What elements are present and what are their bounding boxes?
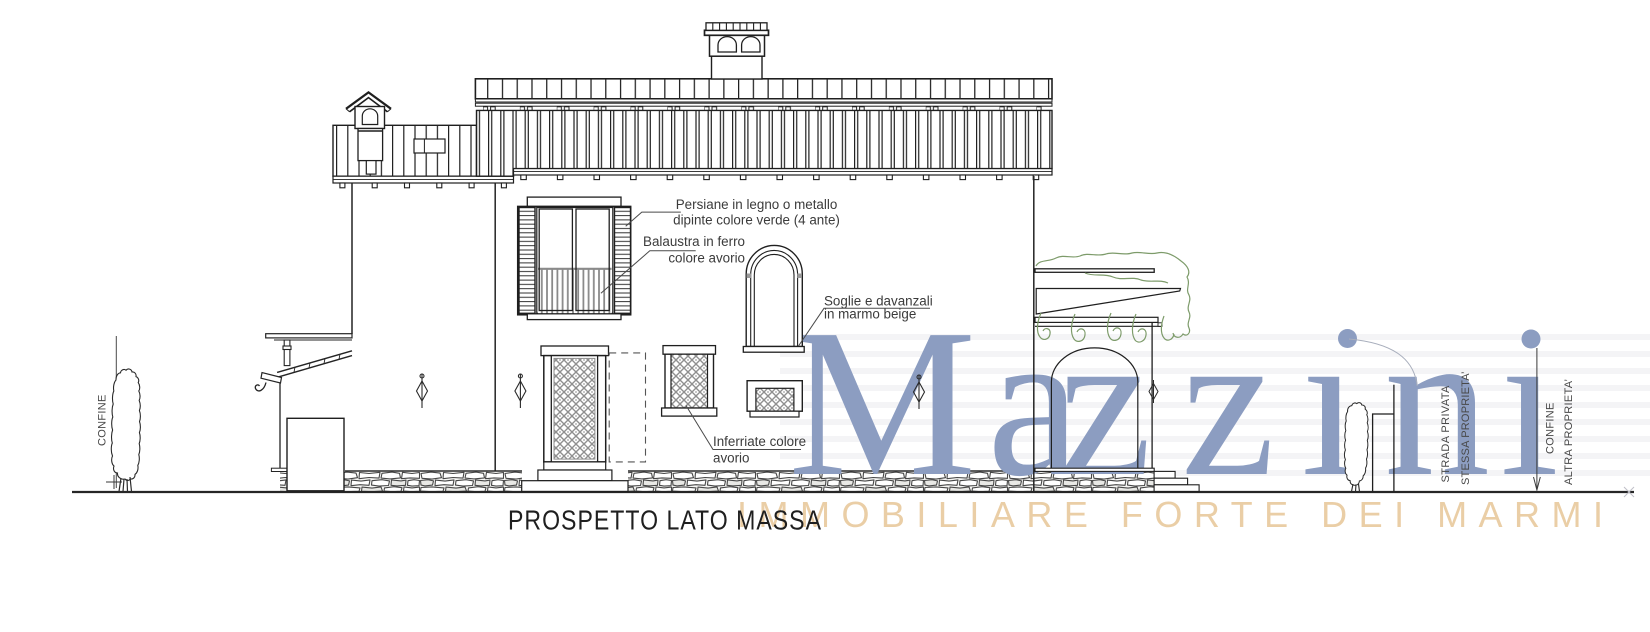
svg-text:PROSPETTO LATO MASSA: PROSPETTO LATO MASSA [508,505,822,536]
svg-text:ALTRA PROPRIETA’: ALTRA PROPRIETA’ [1563,379,1575,485]
svg-text:Persiane in legno o metallo: Persiane in legno o metallo [676,197,838,212]
svg-text:avorio: avorio [713,451,749,466]
svg-text:STRADA PRIVATA: STRADA PRIVATA [1440,385,1452,483]
svg-text:CONFINE: CONFINE [1545,402,1557,454]
svg-text:colore avorio: colore avorio [668,250,745,265]
svg-text:Inferriate colore: Inferriate colore [713,434,806,449]
svg-text:dipinte colore verde (4 ante): dipinte colore verde (4 ante) [673,213,840,228]
svg-text:ı: ı [1301,285,1360,520]
svg-text:Balaustra in ferro: Balaustra in ferro [643,234,745,249]
svg-text:STESSA PROPRIETA’: STESSA PROPRIETA’ [1460,371,1472,485]
svg-text:n: n [1384,285,1490,520]
svg-text:CONFINE: CONFINE [97,394,109,446]
